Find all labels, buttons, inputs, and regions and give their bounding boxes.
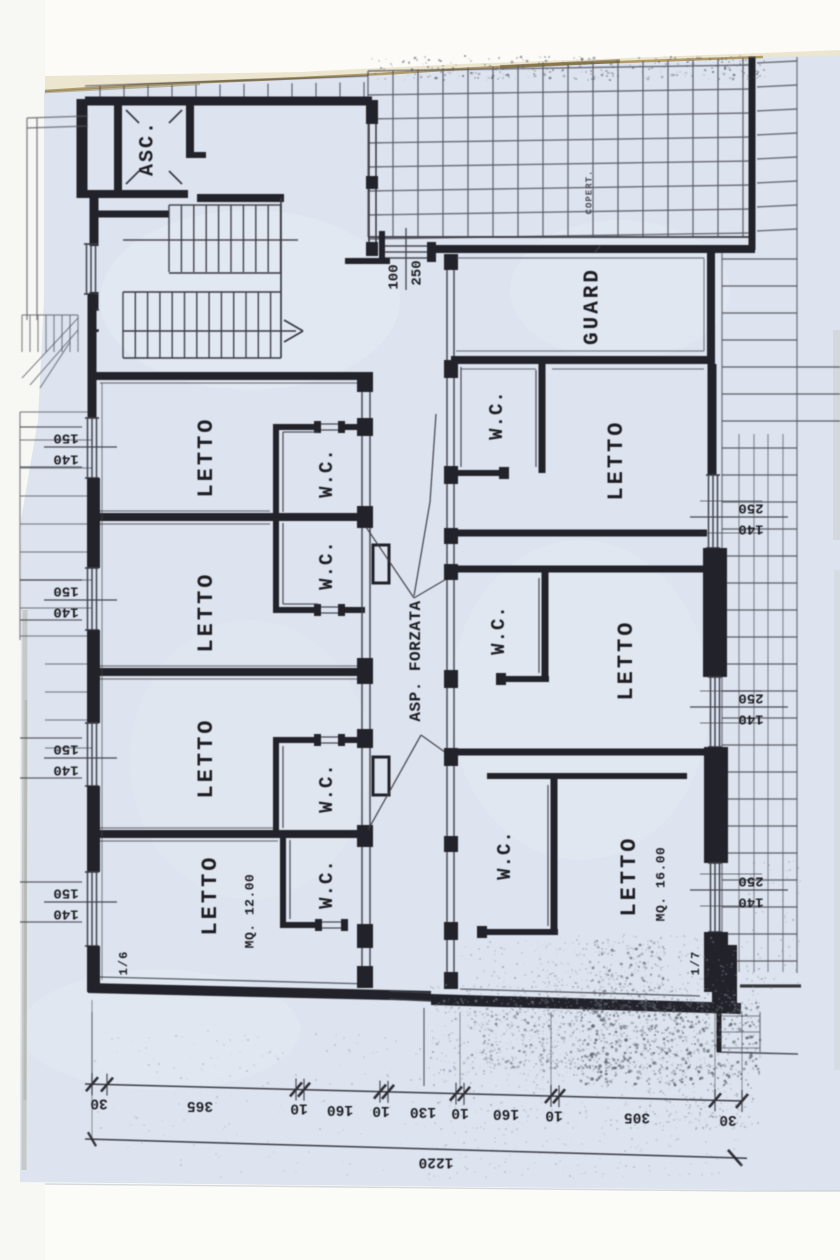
svg-text:250: 250	[410, 260, 426, 285]
svg-text:10: 10	[545, 1106, 562, 1122]
svg-text:160: 160	[327, 1101, 353, 1117]
svg-text:250: 250	[738, 689, 763, 705]
svg-text:150: 150	[53, 582, 78, 598]
svg-text:140: 140	[53, 450, 78, 466]
svg-text:W.C.: W.C.	[316, 763, 338, 813]
svg-text:140: 140	[53, 761, 78, 777]
svg-text:30: 30	[719, 1111, 736, 1127]
svg-text:365: 365	[187, 1097, 213, 1113]
svg-text:W.C.: W.C.	[486, 390, 508, 440]
svg-text:1/6: 1/6	[117, 951, 131, 976]
svg-text:305: 305	[624, 1108, 650, 1124]
svg-text:W.C.: W.C.	[316, 859, 338, 909]
svg-text:1/7: 1/7	[689, 951, 703, 976]
svg-text:10: 10	[290, 1100, 307, 1116]
svg-text:140: 140	[738, 710, 763, 726]
svg-text:1220: 1220	[419, 1153, 454, 1169]
svg-text:250: 250	[738, 872, 763, 888]
svg-text:140: 140	[53, 603, 78, 619]
svg-text:LETTO: LETTO	[198, 854, 223, 935]
svg-text:140: 140	[738, 520, 763, 536]
svg-text:LETTO: LETTO	[194, 717, 219, 798]
svg-text:LETTO: LETTO	[194, 571, 219, 652]
svg-text:LETTO: LETTO	[617, 835, 642, 916]
svg-text:150: 150	[53, 740, 78, 756]
svg-text:10: 10	[451, 1104, 468, 1120]
svg-text:LETTO: LETTO	[604, 419, 629, 500]
svg-text:100: 100	[387, 264, 403, 289]
svg-text:140: 140	[738, 893, 763, 909]
svg-text:160: 160	[493, 1105, 519, 1121]
svg-text:W.C.: W.C.	[316, 540, 338, 590]
svg-text:LETTO: LETTO	[614, 619, 639, 700]
svg-text:W.C.: W.C.	[494, 830, 516, 880]
svg-text:250: 250	[738, 499, 763, 515]
svg-text:MQ. 12.00: MQ. 12.00	[242, 874, 257, 949]
svg-text:W.C.: W.C.	[316, 448, 338, 498]
svg-text:30: 30	[90, 1095, 107, 1111]
svg-text:COPERT.: COPERT.	[584, 170, 594, 215]
svg-text:140: 140	[53, 905, 78, 921]
svg-text:GUARD: GUARD	[582, 267, 605, 345]
svg-text:ASP. FORZATA: ASP. FORZATA	[407, 600, 425, 721]
svg-text:150: 150	[53, 884, 78, 900]
svg-text:ASC.: ASC.	[136, 120, 159, 176]
svg-text:130: 130	[410, 1103, 436, 1119]
svg-text:150: 150	[53, 429, 78, 445]
svg-text:LETTO: LETTO	[194, 416, 219, 497]
svg-text:W.C.: W.C.	[488, 605, 510, 655]
svg-text:MQ. 16.00: MQ. 16.00	[653, 847, 668, 922]
